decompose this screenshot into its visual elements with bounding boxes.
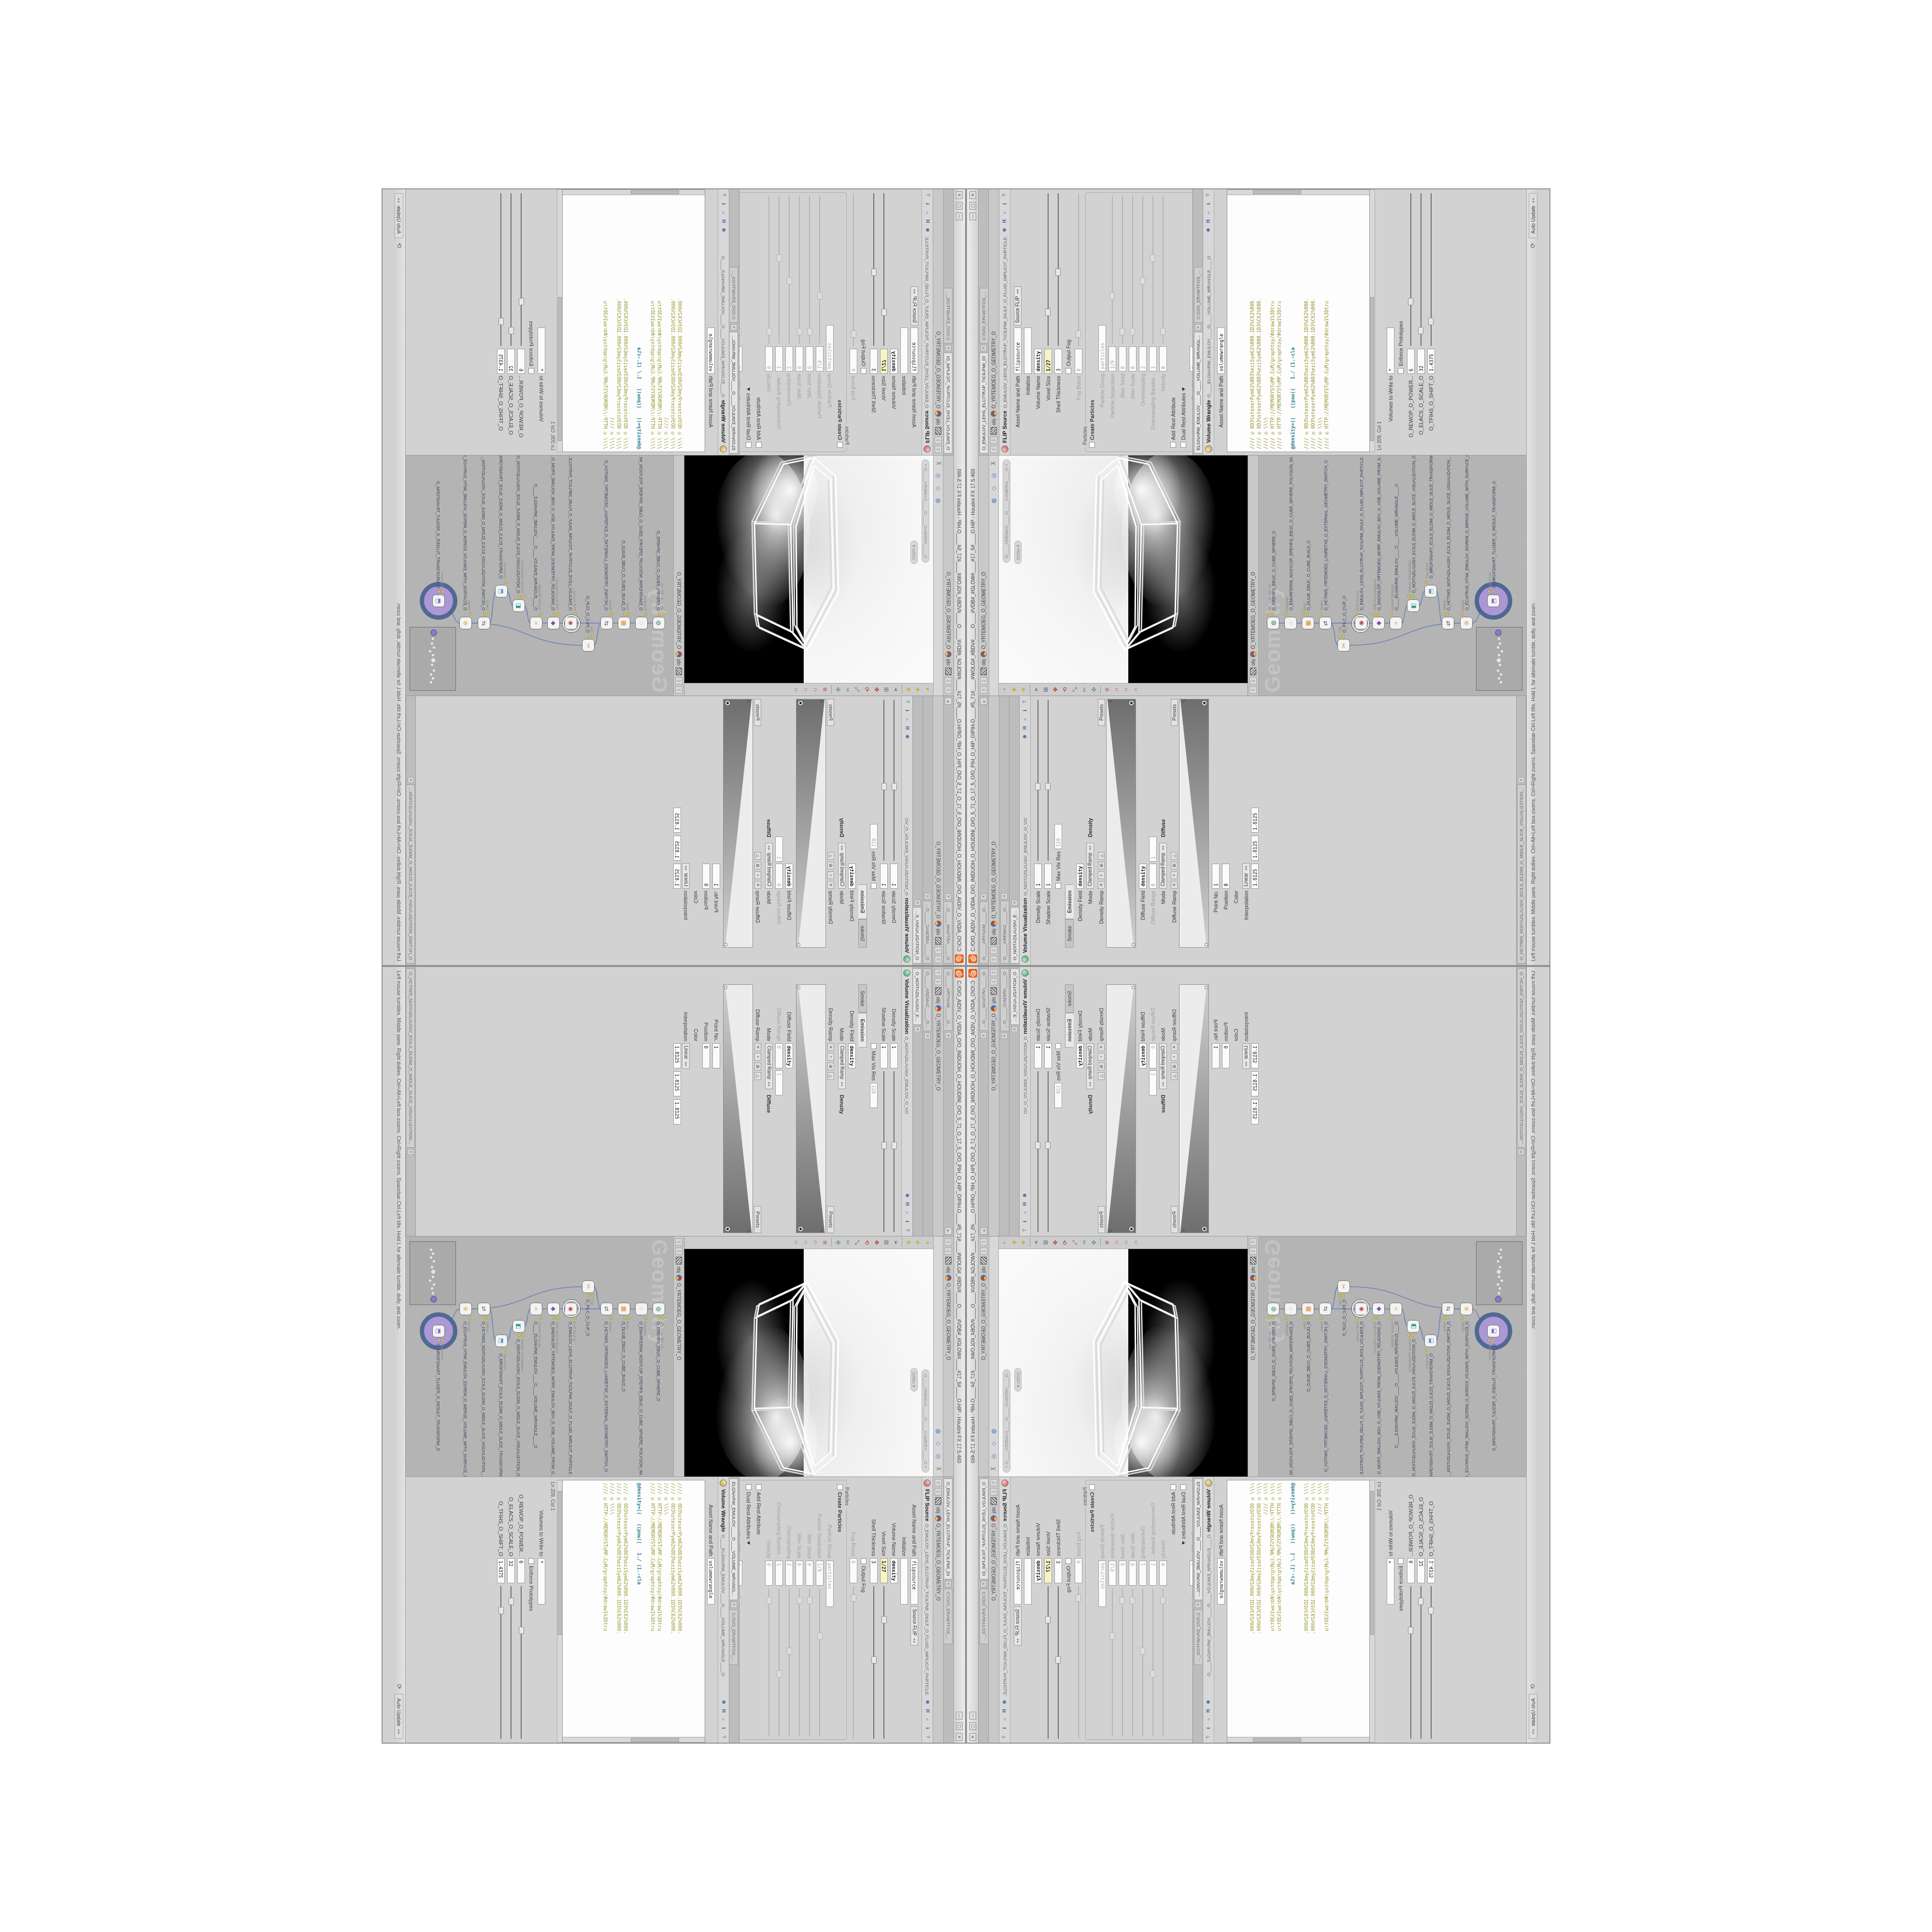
parameter-slider[interactable]: [1417, 192, 1425, 347]
value-field[interactable]: 6: [518, 349, 526, 374]
pie-menu-icon[interactable]: [676, 651, 682, 657]
value-field[interactable]: 1: [776, 1070, 783, 1095]
auto-update-dropdown[interactable]: Auto Update◂ ▸: [1529, 193, 1537, 238]
value-field[interactable]: 3: [870, 349, 878, 374]
shaded-sphere-icon[interactable]: ◍: [934, 496, 943, 506]
slider-handle[interactable]: [1055, 1656, 1061, 1663]
ramp-delete-icon[interactable]: ✕: [827, 881, 834, 889]
snap-point-icon[interactable]: ∩: [792, 1237, 801, 1247]
ramp-marker-icon[interactable]: △: [754, 852, 761, 860]
pane-corner-icons[interactable]: ✽H⌕ℹ?: [1002, 192, 1008, 233]
nav-up-icon[interactable]: ⇧: [935, 956, 942, 963]
tab-close-icon[interactable]: ✕: [408, 1149, 414, 1155]
network-node[interactable]: ◧: [512, 1320, 525, 1333]
pie-menu-icon[interactable]: [980, 1275, 987, 1281]
slider-handle[interactable]: [519, 298, 525, 305]
network-node[interactable]: ≈: [1390, 617, 1402, 629]
geometry-path[interactable]: O_YRTEMOEG_O_GEOMETRY_O: [991, 1013, 996, 1091]
parameter-slider[interactable]: [870, 192, 878, 347]
pie-menu-icon[interactable]: [991, 1515, 997, 1521]
ramp-add-icon[interactable]: +: [1098, 871, 1105, 879]
value-field[interactable]: particles: [1098, 325, 1106, 371]
node-flag-dot[interactable]: [591, 1294, 594, 1297]
select-arrow-icon[interactable]: ➢: [891, 1237, 900, 1247]
value-field[interactable]: 0: [796, 1561, 804, 1586]
slider-handle[interactable]: [797, 328, 803, 335]
node-flag-dot[interactable]: [623, 1317, 626, 1320]
viewport-canvas[interactable]: O____AREMAC____O____CAMERA____O ⌖ Ortho …: [999, 455, 1248, 683]
ramp-handle-icon[interactable]: ◁: [746, 699, 752, 703]
dropdown[interactable]: Source FLIP◂ ▸: [911, 286, 919, 326]
value-field[interactable]: 0: [1190, 1561, 1193, 1586]
ramp-gradient-editor[interactable]: ◁: [1179, 699, 1209, 948]
volvis-node-path[interactable]: O_NOITAZILAUSIV_EMULOV_O_VO: [1023, 1037, 1028, 1190]
network-node[interactable]: ◆: [547, 617, 560, 629]
ramp-gradient-editor[interactable]: ◁: [1106, 699, 1136, 948]
parameter-slider[interactable]: [508, 1585, 515, 1740]
parameter-slider[interactable]: [1159, 195, 1167, 344]
node-flag-dot[interactable]: [539, 1317, 542, 1320]
rotate-tool-icon[interactable]: ⟲: [1061, 685, 1070, 695]
flip-node-path[interactable]: O_EMULOV_LEHS_ELCITRAP_TICILPMI_DIULF_O_…: [925, 236, 930, 408]
shading-mode-icon[interactable]: ◑: [1000, 685, 1009, 695]
network-node[interactable]: ◍: [653, 617, 665, 629]
value-field[interactable]: 1.4375: [497, 1558, 505, 1583]
value-field[interactable]: 2: [1139, 346, 1147, 371]
value-field[interactable]: *: [538, 327, 546, 374]
value-field[interactable]: flipsource: [911, 1558, 919, 1605]
flip-pane-tabbar[interactable]: O_EMULOV_LEHS_ELCITRAP_TICILPMI_DI ✕ C:/…: [943, 1477, 953, 1743]
network-node[interactable]: ⇄: [478, 1303, 490, 1315]
checkbox[interactable]: [756, 1484, 762, 1490]
value-field[interactable]: 1.8125: [673, 864, 681, 889]
ramp-marker-icon[interactable]: △: [754, 1072, 761, 1080]
value-field[interactable]: flipsource: [1014, 327, 1022, 374]
node-flag-dot[interactable]: [438, 1339, 440, 1342]
value-field[interactable]: 1.8125: [1251, 1099, 1259, 1124]
presets-button[interactable]: Presets: [1098, 699, 1105, 726]
value-field[interactable]: 32: [1417, 349, 1425, 374]
network-node[interactable]: ◍: [1267, 617, 1279, 629]
code-horizontal-scrollbar[interactable]: [557, 1480, 562, 1743]
parameter-slider[interactable]: [508, 192, 515, 347]
move-tool-icon[interactable]: ✥: [1051, 685, 1060, 695]
ramp-marker-icon[interactable]: △: [1171, 852, 1178, 860]
snap-grid-icon[interactable]: ∩: [1112, 685, 1121, 695]
flip-pane-tabbar[interactable]: O_EMULOV_LEHS_ELCITRAP_TICILPMI_DI ✕ C:/…: [979, 1477, 989, 1743]
target-rings-icon[interactable]: ◎: [934, 1451, 943, 1461]
pane-corner-icons[interactable]: ✽H⌕ℹ?: [904, 1192, 910, 1234]
dropdown-spinner-icon[interactable]: ◂ ▸: [1086, 845, 1094, 850]
value-field[interactable]: 1: [1212, 1043, 1220, 1068]
vex-code-editor[interactable]: //// ◎ 0D3%steserPym62%0D3%eziSym62%000.…: [1227, 189, 1370, 452]
slider-handle[interactable]: [1428, 1607, 1434, 1614]
tab-camera[interactable]: O_____AREMAC_____O...: [924, 901, 932, 964]
node-flag-dot[interactable]: [1492, 1339, 1494, 1342]
dropdown[interactable]: Source FLIP◂ ▸: [1014, 1606, 1022, 1646]
handles-icon[interactable]: ⊞: [1041, 1237, 1051, 1247]
tab-close-icon[interactable]: ✕: [946, 894, 952, 900]
mantra-pane-tabbar[interactable]: O_____ARTNAM_____O... ✕ ▸: [943, 967, 953, 1236]
ramp-start-point[interactable]: [1205, 943, 1208, 946]
parameter-slider[interactable]: [891, 699, 898, 862]
node-flag-dot[interactable]: [627, 1317, 630, 1320]
slider-handle[interactable]: [1120, 328, 1125, 335]
close-button[interactable]: ✕: [956, 191, 963, 199]
value-field[interactable]: 1: [1034, 1043, 1042, 1068]
slider-handle[interactable]: [1035, 783, 1040, 790]
ramp-start-point[interactable]: [1132, 986, 1135, 989]
nav-down-icon[interactable]: ⇩: [990, 947, 997, 954]
value-field[interactable]: 0: [1159, 346, 1167, 371]
nav-down-icon[interactable]: ⇩: [935, 437, 942, 444]
tab-close-icon[interactable]: ✕: [915, 1026, 921, 1033]
tab-close-icon[interactable]: ✕: [1001, 1033, 1008, 1039]
value-field[interactable]: *: [1387, 327, 1394, 374]
vex-code-editor[interactable]: //// ◎ 0D3%steserPym62%0D3%eziSym62%000.…: [1227, 1480, 1370, 1743]
tab-camera[interactable]: O_____AREMAC_____O...: [924, 968, 932, 1031]
network-node[interactable]: ⬒: [1487, 1325, 1500, 1337]
slider-handle[interactable]: [1140, 1648, 1145, 1655]
nav-up-icon[interactable]: ⇧: [1250, 686, 1257, 694]
ramp-expand-icon[interactable]: ⊞: [754, 862, 761, 869]
dropdown[interactable]: Linear◂ ▸: [682, 1043, 690, 1069]
network-node[interactable]: ◆: [1372, 617, 1385, 629]
presets-button[interactable]: Presets: [1171, 699, 1178, 726]
dropdown-spinner-icon[interactable]: ◂ ▸: [1014, 1638, 1021, 1643]
pushpin-icon[interactable]: ⊼: [989, 458, 998, 468]
network-node[interactable]: ⬒: [432, 595, 445, 607]
value-field[interactable]: 1/9: [1108, 346, 1116, 371]
node-flag-dot[interactable]: [1320, 1317, 1322, 1320]
node-flag-dot[interactable]: [1377, 1317, 1379, 1320]
slider-handle[interactable]: [1130, 328, 1135, 335]
checkbox[interactable]: [1065, 1558, 1071, 1564]
dropdown[interactable]: Source FLIP◂ ▸: [1014, 286, 1022, 326]
value-field[interactable]: density: [891, 349, 898, 374]
tab-volume-wrangle[interactable]: ELGNARW_EMULOV____O____VOLUME_WRANGL...: [730, 1478, 739, 1600]
network-canvas[interactable]: Geometry ◍am_CubeSphereO: [1259, 1236, 1526, 1477]
ramp-end-point[interactable]: [1129, 1227, 1134, 1231]
geometry-path[interactable]: O_YRTEMOEG_O_GEOMETRY_O: [981, 572, 986, 649]
slider-handle[interactable]: [882, 1616, 887, 1623]
value-field[interactable]: density: [891, 1558, 898, 1583]
value-field[interactable]: 0: [806, 346, 814, 371]
pie-menu-icon[interactable]: [945, 651, 952, 657]
value-field[interactable]: 3: [870, 1558, 878, 1583]
folder-tab-emission[interactable]: Emission: [858, 884, 867, 920]
asset-name-field[interactable]: volumewrangle: [1217, 1558, 1225, 1605]
node-flag-dot[interactable]: [587, 1294, 590, 1297]
dropdown-spinner-icon[interactable]: ◂ ▸: [1242, 866, 1250, 870]
network-node[interactable]: ⊕: [459, 1303, 472, 1315]
nav-up-icon[interactable]: ⇧: [980, 1238, 987, 1246]
ramp-marker-icon[interactable]: △: [1171, 1072, 1178, 1080]
parameter-slider[interactable]: [1054, 192, 1062, 347]
ramp-delete-icon[interactable]: ✕: [754, 881, 761, 889]
parameter-slider[interactable]: [816, 1588, 824, 1737]
network-node[interactable]: ◆: [547, 1303, 560, 1315]
close-button[interactable]: ✕: [969, 191, 976, 199]
parameter-slider[interactable]: [776, 1588, 783, 1737]
pane-corner-icons[interactable]: ✽H⌕ℹ?: [1002, 1699, 1008, 1740]
checkbox[interactable]: [861, 1558, 867, 1564]
snap-prim-icon[interactable]: ∩: [801, 1237, 810, 1247]
ortho-pill[interactable]: Ortho ▾: [1014, 540, 1022, 564]
snip-icon[interactable]: ✂: [1080, 685, 1089, 695]
network-node[interactable]: ◧: [1407, 1320, 1420, 1333]
slider-handle[interactable]: [808, 328, 813, 335]
ramp-delete-icon[interactable]: ✕: [1171, 1043, 1178, 1051]
checkbox[interactable]: [838, 442, 843, 448]
refresh-icon[interactable]: ⟳: [1529, 1684, 1536, 1689]
checkbox[interactable]: [756, 442, 762, 448]
network-node[interactable]: ⇄: [1442, 1303, 1454, 1315]
tab-midle-slice[interactable]: O_HCTIWS_NOITAZILAUSIV_ECILS_ELDIM_O_MID…: [1517, 968, 1525, 1148]
ramp-add-icon[interactable]: +: [1171, 1053, 1178, 1061]
takes-icon[interactable]: ❖: [1019, 685, 1028, 695]
obj-label[interactable]: obj: [991, 1507, 996, 1513]
slider-handle[interactable]: [499, 1607, 504, 1614]
pane-corner-icons[interactable]: ✽H⌕ℹ?: [924, 192, 930, 233]
ramp-add-icon[interactable]: +: [754, 871, 761, 879]
pushpin-icon[interactable]: ⊼: [934, 458, 943, 468]
network-node[interactable]: ✂: [1337, 639, 1350, 652]
node-flag-dot[interactable]: [610, 1317, 612, 1320]
geometry-path[interactable]: O_YRTEMOEG_O_GEOMETRY_O: [936, 841, 941, 919]
ramp-start-point[interactable]: [724, 943, 727, 946]
checkbox[interactable]: [1055, 1043, 1061, 1049]
value-field[interactable]: 1.4375: [497, 349, 505, 374]
tab-close-icon[interactable]: ✕: [946, 345, 952, 351]
visualization-pane-tabbar[interactable]: O_NOITAZILAUSIV_E... ✕: [1009, 696, 1020, 965]
slice-pane-tabbar[interactable]: O_HCTIWS_NOITAZILAUSIV_ECILS_ELDIM_O_MID…: [1516, 696, 1526, 965]
shading-mode-icon[interactable]: ◑: [923, 685, 932, 695]
value-field[interactable]: particles: [826, 325, 834, 371]
code-vertical-scrollbar[interactable]: [563, 1737, 705, 1742]
nav-up-icon[interactable]: ⇧: [990, 956, 997, 963]
dropdown-spinner-icon[interactable]: ◂ ▸: [838, 1081, 846, 1086]
ramp-expand-icon[interactable]: ⊞: [754, 1063, 761, 1070]
tab-software-path[interactable]: C:/O/O_ERAWTFOS_...: [730, 1609, 739, 1665]
tab-mantra[interactable]: O_____ARTNAM_____O...: [980, 901, 988, 964]
ramp-gradient-editor[interactable]: ◁: [1179, 984, 1209, 1233]
target-rings-icon[interactable]: ◎: [934, 471, 943, 481]
obj-label[interactable]: obj: [1250, 659, 1256, 666]
parameter-slider[interactable]: [1427, 192, 1435, 347]
slider-handle[interactable]: [852, 1594, 857, 1602]
parameter-slider[interactable]: [1159, 1588, 1167, 1737]
tab-close-icon[interactable]: ✕: [980, 1032, 987, 1038]
value-field[interactable]: 1/9: [816, 1561, 824, 1586]
target-rings-icon[interactable]: ◎: [989, 1451, 998, 1461]
close-button[interactable]: ✕: [956, 1733, 963, 1741]
parameter-slider[interactable]: [497, 192, 505, 347]
network-node[interactable]: ⇄: [478, 617, 490, 629]
wire-cube-icon[interactable]: ◇: [989, 483, 998, 493]
network-node[interactable]: ◆: [1372, 1303, 1385, 1315]
viewport-canvas[interactable]: O____AREMAC____O____CAMERA____O ⌖ Ortho …: [684, 1249, 933, 1477]
network-node[interactable]: ≈: [530, 617, 542, 629]
nav-up-icon[interactable]: ⇧: [675, 686, 682, 694]
network-node[interactable]: ◌: [635, 1303, 648, 1315]
tab-camera[interactable]: O_____AREMAC_____O...: [1000, 901, 1009, 964]
network-node[interactable]: ▦: [1302, 617, 1314, 629]
value-field[interactable]: 0: [796, 346, 804, 371]
pie-menu-icon[interactable]: [935, 1005, 941, 1011]
slider-handle[interactable]: [872, 1656, 877, 1663]
parameter-slider[interactable]: [1417, 1585, 1425, 1740]
wrangle-pane-tabbar[interactable]: ELGNARW_EMULOV____O____VOLUME_WRANGL... …: [729, 189, 739, 455]
folder-tab-emission[interactable]: Emission: [1065, 884, 1074, 920]
slider-handle[interactable]: [767, 328, 772, 335]
node-flag-dot[interactable]: [1306, 1317, 1309, 1320]
value-field[interactable]: 1: [1034, 864, 1042, 889]
nav-up-icon[interactable]: ⇧: [990, 969, 997, 976]
pane-corner-icons[interactable]: ✽H⌕ℹ?: [1206, 1699, 1211, 1740]
parameter-slider[interactable]: [739, 1588, 743, 1737]
tab-software-path[interactable]: C:/O/O_ERAWTFOS_...: [945, 288, 953, 344]
value-field[interactable]: [1024, 327, 1032, 374]
scale-tool-icon[interactable]: ⤡: [852, 685, 862, 695]
minimize-button[interactable]: —: [969, 213, 976, 220]
value-field[interactable]: 128: [870, 824, 878, 849]
network-node[interactable]: ◌: [635, 617, 648, 629]
network-node[interactable]: ◉: [565, 617, 577, 629]
parameter-slider[interactable]: [1075, 192, 1082, 347]
ramp-expand-icon[interactable]: ⊞: [1098, 862, 1105, 869]
wire-cube-icon[interactable]: ◇: [934, 483, 943, 493]
value-field[interactable]: 1/9: [1108, 1561, 1116, 1586]
nav-down-icon[interactable]: ⇩: [990, 1488, 997, 1495]
network-node[interactable]: ⊕: [1460, 1303, 1473, 1315]
slider-handle[interactable]: [892, 1142, 897, 1149]
code-horizontal-scrollbar[interactable]: [1370, 1480, 1375, 1743]
tab-close-icon[interactable]: ✕: [980, 1581, 987, 1587]
pane-maximize-icon[interactable]: ▸: [945, 1227, 952, 1235]
slider-handle[interactable]: [1045, 309, 1051, 316]
slider-handle[interactable]: [1150, 255, 1155, 262]
value-field[interactable]: 1.8125: [673, 1043, 681, 1068]
tab-visualization[interactable]: O_NOITAZILAUSIV_E...: [1010, 907, 1019, 964]
ramp-delete-icon[interactable]: ✕: [1098, 1043, 1105, 1051]
parameter-slider[interactable]: [1149, 195, 1157, 344]
value-field[interactable]: density: [786, 864, 794, 889]
geometry-path[interactable]: O_YRTEMOEG_O_GEOMETRY_O: [936, 1013, 941, 1091]
obj-label[interactable]: obj: [936, 419, 941, 425]
network-node[interactable]: ⇄: [600, 617, 613, 629]
nav-down-icon[interactable]: ⇩: [935, 947, 942, 954]
slider-handle[interactable]: [1076, 330, 1081, 338]
tab-close-icon[interactable]: ✕: [408, 777, 414, 783]
slider-handle[interactable]: [818, 1633, 823, 1640]
tab-flip-source[interactable]: O_EMULOV_LEHS_ELCITRAP_TICILPMI_DI: [945, 353, 953, 454]
slider-handle[interactable]: [882, 783, 887, 790]
value-field[interactable]: density: [849, 1043, 856, 1068]
ramp-start-point[interactable]: [1205, 986, 1208, 989]
value-field[interactable]: 1.8125: [1251, 836, 1259, 861]
ramp-delete-icon[interactable]: ✕: [1098, 881, 1105, 889]
layers-icon[interactable]: ◈: [1009, 685, 1019, 695]
parameter-slider[interactable]: [1044, 192, 1052, 347]
node-flag-dot[interactable]: [644, 1317, 647, 1320]
value-field[interactable]: flipsource: [1014, 1558, 1022, 1605]
slider-handle[interactable]: [787, 277, 793, 284]
nav-up-icon[interactable]: ⇧: [990, 446, 997, 453]
ramp-add-icon[interactable]: +: [827, 1053, 834, 1061]
parameter-slider[interactable]: [518, 192, 526, 347]
dropdown[interactable]: Clamped Ramp◂ ▸: [1159, 843, 1167, 889]
pie-menu-icon[interactable]: [676, 1275, 682, 1281]
pie-menu-icon[interactable]: [980, 651, 987, 657]
folder-tab-smoke[interactable]: Smoke: [858, 984, 867, 1013]
network-node[interactable]: ▦: [618, 617, 630, 629]
slider-handle[interactable]: [1035, 1142, 1040, 1149]
nav-down-icon[interactable]: ⇩: [990, 978, 997, 985]
auto-update-dropdown[interactable]: Auto Update◂ ▸: [395, 193, 404, 238]
obj-label[interactable]: obj: [981, 659, 986, 666]
ortho-pill[interactable]: Ortho ▾: [1014, 1368, 1022, 1392]
network-node[interactable]: ✂: [582, 1280, 595, 1293]
tab-close-icon[interactable]: ✕: [1011, 900, 1018, 906]
value-field[interactable]: density: [1076, 864, 1084, 889]
value-field[interactable]: 0: [776, 1043, 783, 1068]
dropdown-spinner-icon[interactable]: ◂ ▸: [1159, 845, 1166, 850]
wrangle-pane-tabbar[interactable]: ELGNARW_EMULOV____O____VOLUME_WRANGL... …: [729, 1477, 739, 1743]
handles-icon[interactable]: ⊞: [881, 1237, 891, 1247]
nav-up-icon[interactable]: ⇧: [1250, 1238, 1257, 1246]
ramp-handle-icon[interactable]: ◁: [746, 1229, 752, 1233]
snap-options-icon[interactable]: ⧈: [821, 1237, 830, 1247]
ramp-handle-icon[interactable]: ◁: [819, 699, 825, 703]
slider-handle[interactable]: [1109, 1633, 1115, 1640]
checkbox[interactable]: [1398, 368, 1404, 374]
move-tool-icon[interactable]: ✥: [1051, 1237, 1060, 1247]
slider-handle[interactable]: [1055, 269, 1061, 276]
slider-handle[interactable]: [767, 1597, 772, 1604]
node-flag-dot[interactable]: [1446, 1317, 1449, 1320]
checkbox[interactable]: [746, 442, 752, 448]
parameter-slider[interactable]: [1108, 195, 1116, 344]
select-arrow-icon[interactable]: ➢: [1032, 685, 1041, 695]
geometry-path[interactable]: O_YRTEMOEG_O_GEOMETRY_O: [991, 841, 996, 919]
slider-handle[interactable]: [787, 1648, 793, 1655]
network-node[interactable]: ⬒: [495, 585, 508, 597]
value-field[interactable]: 1: [1212, 864, 1220, 889]
flip-pane-tabbar[interactable]: O_EMULOV_LEHS_ELCITRAP_TICILPMI_DI ✕ C:/…: [943, 189, 953, 455]
asset-name-field[interactable]: volumewrangle: [1217, 327, 1225, 374]
slider-handle[interactable]: [1140, 277, 1145, 284]
tab-close-icon[interactable]: ✕: [946, 1032, 952, 1038]
value-field[interactable]: 6: [1407, 1558, 1415, 1583]
network-node[interactable]: ≈: [530, 1303, 542, 1315]
network-node[interactable]: ◍: [653, 1303, 665, 1315]
ramp-end-point[interactable]: [798, 1227, 803, 1231]
value-field[interactable]: 6: [1407, 349, 1415, 374]
network-node[interactable]: ◌: [1284, 617, 1297, 629]
tab-software-path[interactable]: C:/O/O_ERAWTFOS_...: [980, 1589, 988, 1645]
checkbox[interactable]: [1089, 442, 1095, 448]
nav-down-icon[interactable]: ⇩: [980, 677, 987, 684]
value-field[interactable]: 0: [739, 1561, 743, 1586]
value-field[interactable]: 2: [786, 346, 794, 371]
parameter-slider[interactable]: [796, 195, 804, 344]
network-node[interactable]: ⬒: [1424, 1335, 1437, 1347]
snap-grid-icon[interactable]: ∩: [1112, 1237, 1121, 1247]
tab-mantra[interactable]: O_____ARTNAM_____O...: [980, 968, 988, 1031]
camera-name-pill[interactable]: O____AREMAC____O____CAMERA____O ⌖: [922, 1369, 929, 1473]
parameter-slider[interactable]: [1108, 1588, 1116, 1737]
